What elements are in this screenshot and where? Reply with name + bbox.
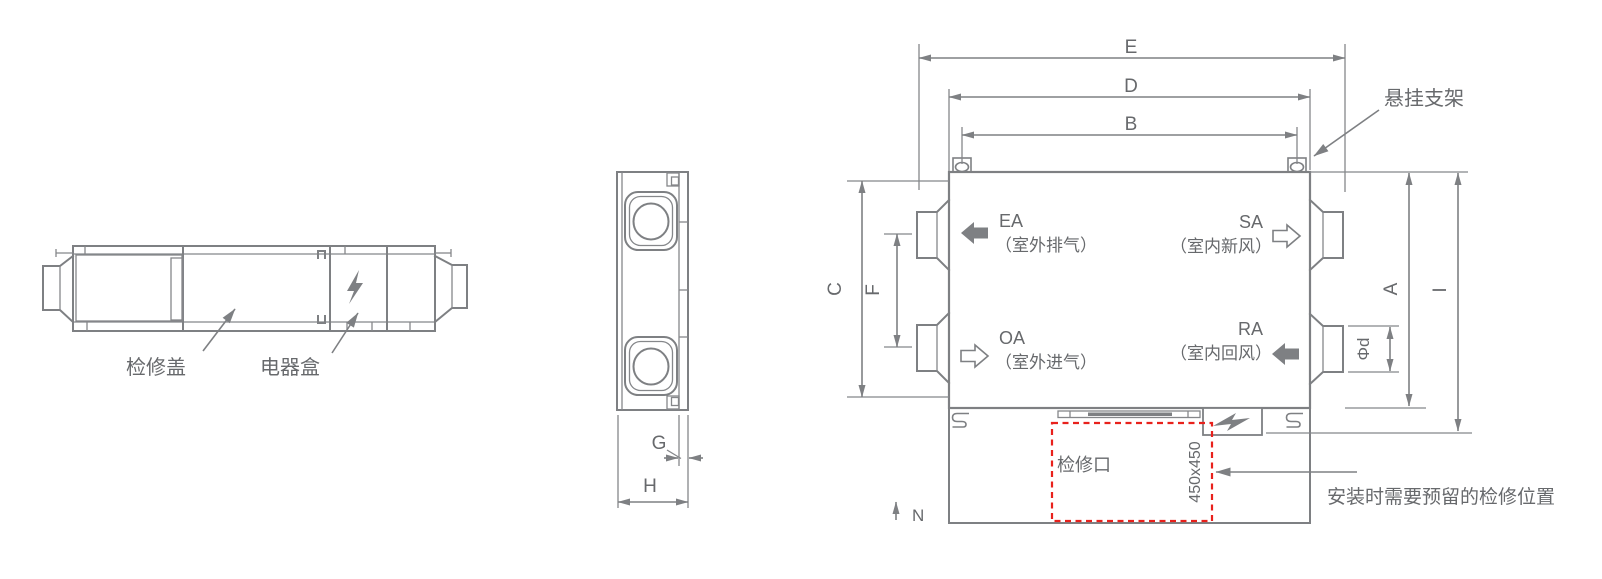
- hanger-bolt-left: [56, 249, 73, 257]
- dim-g-label: G: [652, 433, 667, 454]
- duct-connector-left: [43, 256, 73, 322]
- port-ea-connector: [917, 200, 949, 270]
- dim-a-label: A: [1381, 282, 1402, 295]
- dimension-phi-d: Φd: [1348, 326, 1399, 372]
- lightning-icon: [347, 270, 363, 304]
- port-sa-code: SA: [1239, 212, 1263, 232]
- dimension-C: C: [825, 181, 949, 397]
- dim-phi-d-label: Φd: [1354, 337, 1373, 360]
- side-view: 检修盖 电器盒: [43, 246, 467, 379]
- sa-airflow-arrow-icon: [1273, 225, 1300, 247]
- dim-h-label: H: [643, 476, 657, 497]
- access-cover-label: 检修盖: [126, 356, 186, 379]
- corner-bracket-top: [667, 173, 679, 186]
- dimension-F: F: [863, 234, 912, 347]
- dim-f-label: F: [863, 284, 884, 296]
- port-sa-name: （室内新风）: [1170, 237, 1272, 256]
- electrical-box-plan: [1203, 408, 1262, 435]
- dim-i-label: I: [1430, 287, 1451, 292]
- drawing-canvas: 检修盖 电器盒: [0, 0, 1602, 579]
- dimension-I: I: [1266, 173, 1472, 433]
- duct-port-bottom: [625, 337, 677, 395]
- clearance-note: 安装时需要预留的检修位置: [1327, 486, 1555, 508]
- door-panel: [76, 255, 182, 321]
- flange-detail: [1058, 411, 1200, 418]
- port-ra-code: RA: [1238, 319, 1263, 339]
- access-opening-size: 450x450: [1187, 441, 1204, 502]
- dim-d-label: D: [1124, 76, 1138, 97]
- port-ra-name: （室内回风）: [1170, 344, 1272, 363]
- dimension-B: B: [962, 114, 1297, 164]
- north-label: N: [912, 506, 924, 525]
- hanging-bracket-label: 悬挂支架: [1384, 87, 1464, 110]
- unit-body-outline: [73, 246, 435, 331]
- dim-e-label: E: [1125, 37, 1138, 58]
- port-ea-name: （室外排气）: [995, 236, 1097, 255]
- port-oa-code: OA: [999, 328, 1025, 348]
- door-handle-bar: [171, 258, 183, 320]
- plan-view: EA （室外排气） SA （室内新风） OA （室外进气） RA （室内回风） …: [825, 37, 1555, 525]
- dim-b-label: B: [1125, 114, 1138, 135]
- duct-connector-right: [435, 256, 467, 322]
- ea-airflow-arrow-icon: [961, 222, 988, 244]
- hanging-bracket-callout: 悬挂支架: [1314, 87, 1464, 156]
- oa-airflow-arrow-icon: [961, 345, 988, 367]
- hrv-dimension-drawing: 检修盖 电器盒: [0, 0, 1602, 579]
- dim-c-label: C: [825, 282, 846, 296]
- electrical-box-leader: [332, 313, 358, 353]
- unit-plan-outline: [949, 172, 1310, 408]
- port-oa-connector: [917, 313, 949, 383]
- electrical-box-label: 电器盒: [260, 356, 320, 379]
- hook-bracket-right-icon: [1287, 414, 1304, 428]
- hanger-bolt-right: [435, 249, 451, 257]
- port-sa-connector: [1310, 200, 1343, 270]
- north-indicator: N: [896, 502, 924, 525]
- access-opening-label: 检修口: [1057, 455, 1111, 475]
- hook-bracket-left-icon: [953, 414, 970, 428]
- port-oa-name: （室外进气）: [995, 353, 1097, 372]
- port-ea-code: EA: [999, 211, 1023, 231]
- dimension-G: G: [618, 415, 703, 508]
- dimension-H: H: [618, 476, 688, 502]
- duct-port-top: [625, 192, 677, 250]
- ra-airflow-arrow-icon: [1272, 343, 1299, 365]
- port-ra-connector: [1310, 314, 1343, 384]
- corner-bracket-bottom: [667, 396, 679, 409]
- end-view: G H: [617, 172, 703, 508]
